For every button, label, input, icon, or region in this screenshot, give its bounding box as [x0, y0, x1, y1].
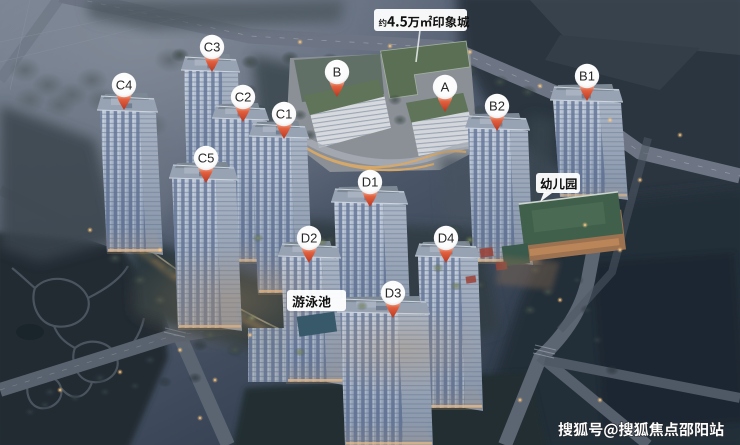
- svg-text:D4: D4: [438, 231, 455, 246]
- svg-text:A: A: [441, 80, 450, 95]
- svg-text:C5: C5: [198, 151, 215, 166]
- svg-text:D3: D3: [385, 286, 402, 301]
- svg-text:D2: D2: [301, 231, 318, 246]
- svg-text:D1: D1: [362, 175, 379, 190]
- svg-text:B: B: [333, 65, 342, 80]
- svg-text:C1: C1: [276, 107, 293, 122]
- svg-text:B2: B2: [489, 99, 505, 114]
- svg-text:C3: C3: [204, 40, 221, 55]
- svg-text:C2: C2: [235, 90, 252, 105]
- svg-text:B1: B1: [579, 69, 595, 84]
- svg-text:C4: C4: [116, 78, 133, 93]
